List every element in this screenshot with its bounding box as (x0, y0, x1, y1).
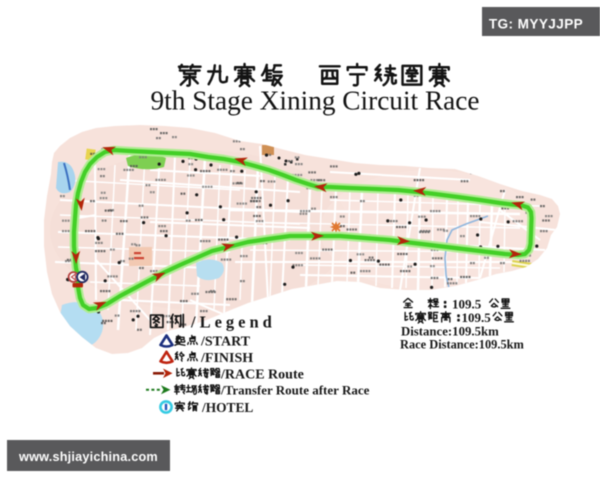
svg-text:TG: MYYJJPP: TG: MYYJJPP (489, 17, 583, 32)
svg-text:www.shjiayichina.com: www.shjiayichina.com (18, 450, 158, 464)
svg-text:Distance:109.5km: Distance:109.5km (401, 325, 499, 339)
svg-text:/FINISH: /FINISH (200, 351, 253, 366)
svg-text:/Legend: /Legend (190, 313, 276, 332)
svg-text:/START: /START (200, 335, 251, 350)
svg-text:/HOTEL: /HOTEL (201, 400, 253, 415)
svg-text:109.5: 109.5 (462, 310, 492, 325)
svg-text:9th Stage Xining Circuit Race: 9th Stage Xining Circuit Race (150, 86, 479, 116)
svg-text:/Transfer Route after Race: /Transfer Route after Race (220, 383, 370, 398)
svg-text:/RACE Route: /RACE Route (220, 367, 304, 382)
svg-text:Race Distance:109.5km: Race Distance:109.5km (400, 338, 525, 352)
